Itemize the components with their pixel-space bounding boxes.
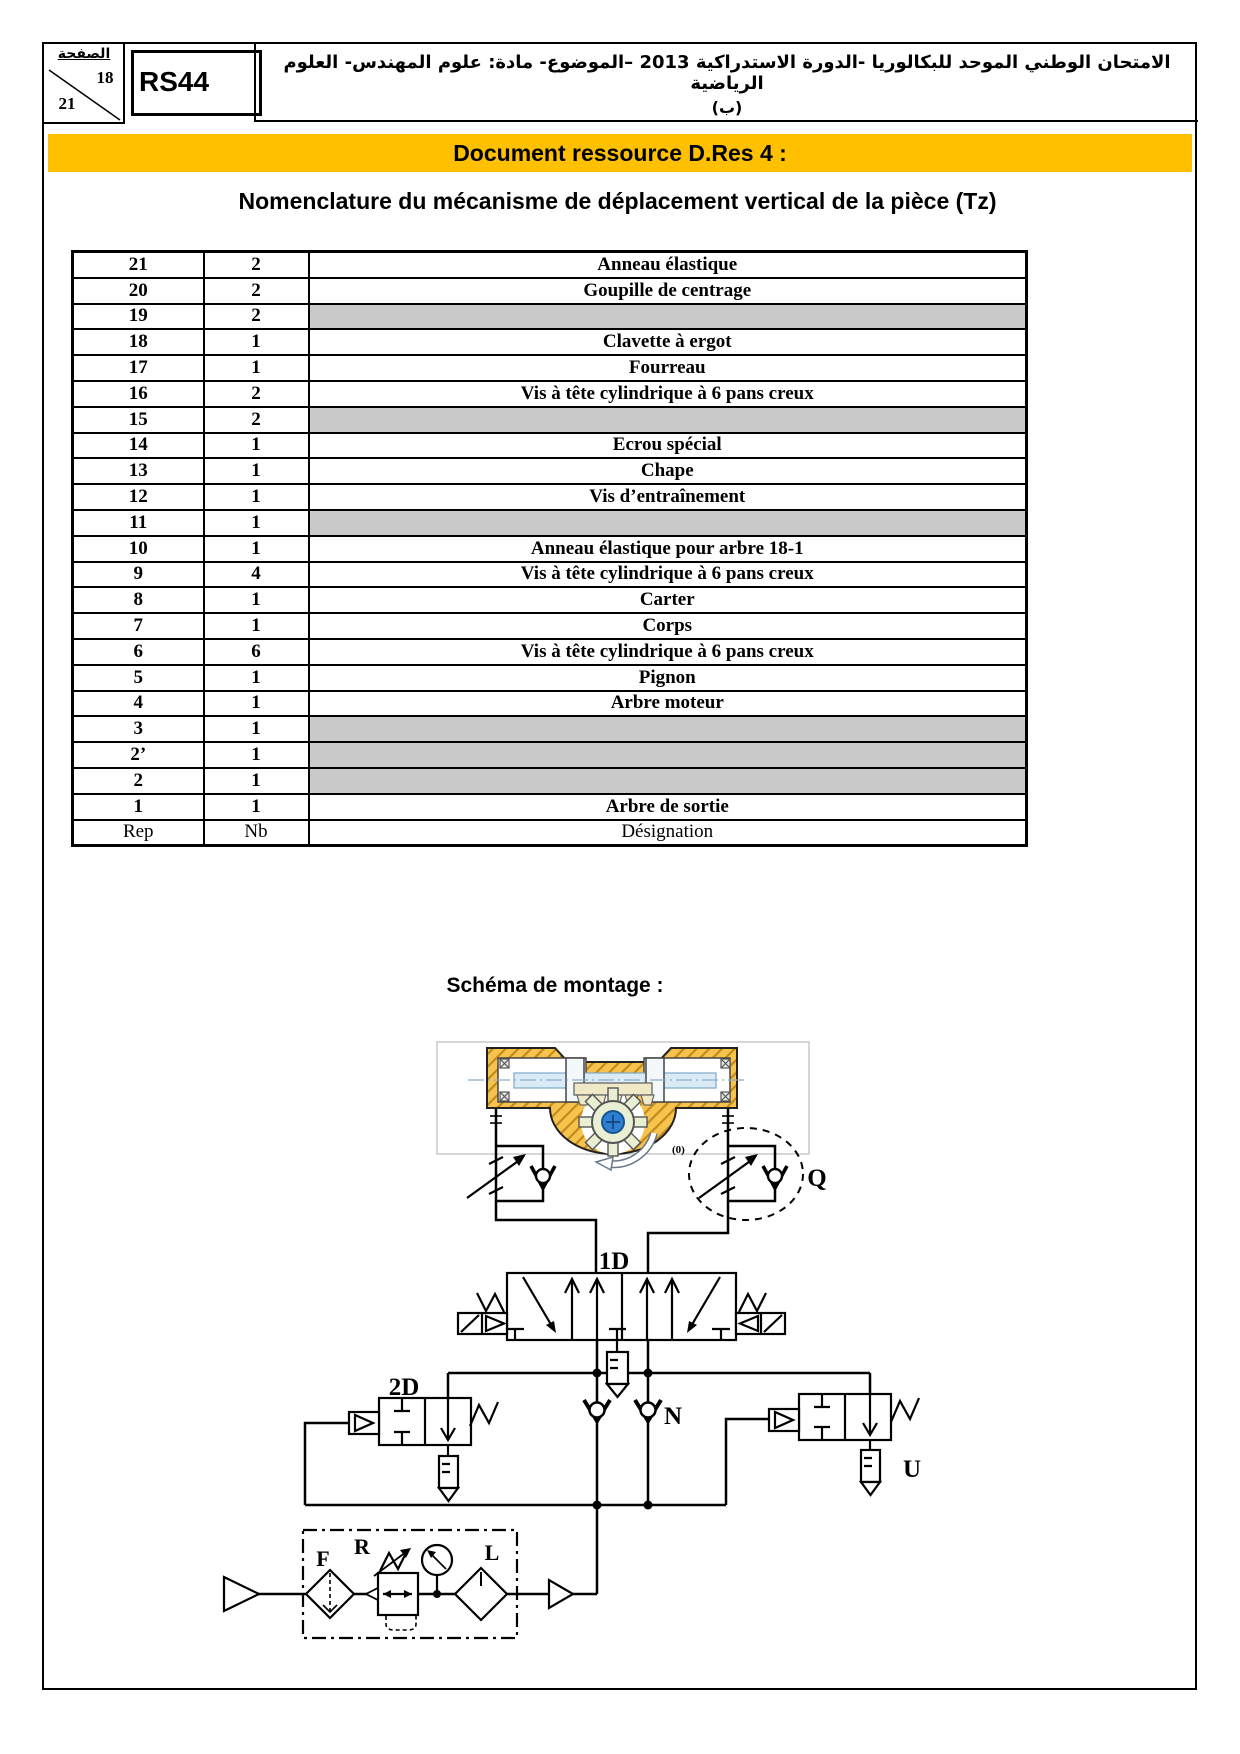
spring-icon xyxy=(891,1398,919,1422)
spring-icon xyxy=(470,1402,498,1426)
frl-unit: F R L xyxy=(224,1530,573,1638)
pilot-left xyxy=(458,1293,507,1334)
valve-2d-label: 2D xyxy=(389,1374,420,1401)
silencer-center xyxy=(607,1352,628,1397)
check-n-label: N xyxy=(664,1403,682,1430)
pinion-gear xyxy=(579,1088,647,1156)
lubricator-l-label: L xyxy=(485,1540,500,1565)
spring-icon xyxy=(477,1293,504,1312)
fcv-q-label: Q xyxy=(807,1165,826,1192)
spring-icon xyxy=(739,1293,766,1312)
directional-valve-1d: 1D xyxy=(458,1248,785,1352)
silencer-u-label: U xyxy=(903,1456,921,1483)
regulator-r xyxy=(366,1548,418,1630)
filter-f-label: F xyxy=(316,1546,329,1571)
lubricator-l xyxy=(455,1568,507,1620)
regulator-r-label: R xyxy=(354,1534,371,1559)
filter-f xyxy=(306,1570,354,1618)
document-page: { "header": { "page_box": {"label": "الص… xyxy=(0,0,1240,1754)
valve-u: U xyxy=(769,1394,921,1495)
rotation-mark-label: (0) xyxy=(672,1144,685,1156)
pneumatic-schematic: (0) Q xyxy=(0,0,1240,1754)
valve-1d-label: 1D xyxy=(599,1248,630,1275)
rotary-actuator-drawing: (0) xyxy=(437,1042,809,1170)
pilot-right xyxy=(736,1293,785,1334)
valve-2d: 2D xyxy=(349,1374,498,1501)
pressure-gauge-icon xyxy=(422,1545,452,1594)
air-supply-icon xyxy=(224,1577,259,1611)
check-valves-n: N xyxy=(584,1400,682,1430)
outlet-triangle-icon xyxy=(549,1580,573,1608)
